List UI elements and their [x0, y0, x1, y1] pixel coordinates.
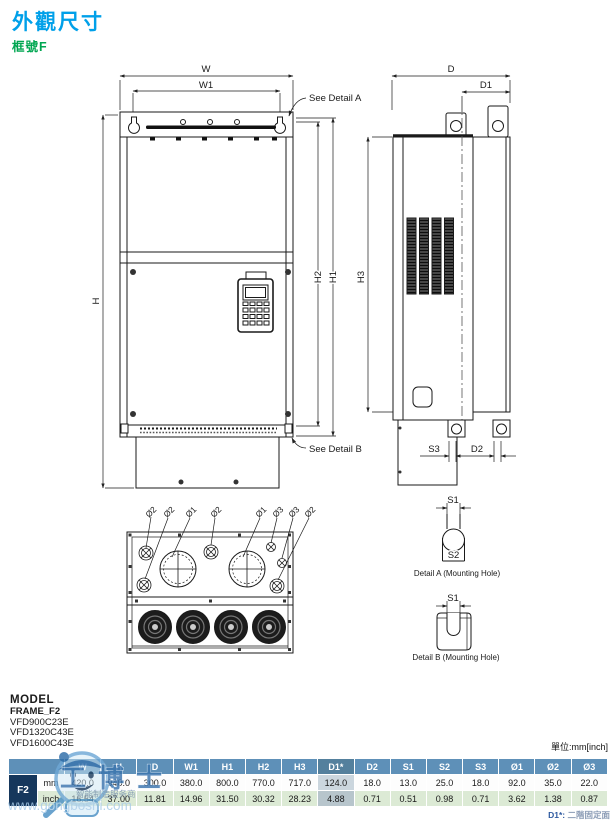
column-header-w1: W1 [174, 759, 209, 774]
table-cell: 0.71 [463, 791, 498, 806]
manual-page: { "header": { "title": "外觀尺寸", "subtitle… [0, 0, 616, 818]
table-cell: 717.0 [282, 775, 317, 790]
side-view: D D1 H3 [356, 64, 516, 485]
table-row-inch: inch 16.54 37.00 11.81 14.96 31.50 30.32… [9, 791, 607, 806]
unit-label: 單位:mm[inch] [551, 740, 608, 753]
table-cell: 11.81 [137, 791, 172, 806]
table-cell: 1.38 [535, 791, 570, 806]
hole-label-8: Ø2 [302, 504, 317, 519]
model-number: VFD1600C43E [10, 739, 74, 750]
table-cell: 35.0 [535, 775, 570, 790]
dim-label-d2: D2 [471, 444, 483, 455]
column-header-h: H [101, 759, 136, 774]
detail-b-caption: Detail B (Mounting Hole) [412, 653, 499, 662]
dim-label-s2: S2 [448, 550, 460, 561]
column-header-s3: S3 [463, 759, 498, 774]
dim-label-w: W [202, 64, 211, 75]
table-cell: 940.0 [101, 775, 136, 790]
dim-label-d1: D1 [480, 80, 492, 91]
dim-label-h: H [91, 297, 102, 304]
table-cell: 25.0 [427, 775, 462, 790]
hole-label-6: Ø3 [270, 504, 285, 519]
dim-label-s1-b: S1 [447, 593, 459, 604]
table-cell: 800.0 [210, 775, 245, 790]
table-cell: 16.54 [65, 791, 100, 806]
dim-label-d: D [448, 64, 455, 75]
detail-a-caption: Detail A (Mounting Hole) [414, 569, 501, 578]
dim-label-s1-a: S1 [447, 495, 459, 506]
table-cell: 0.71 [355, 791, 390, 806]
dim-label-h2: H2 [313, 271, 324, 283]
column-header-w: W [65, 759, 100, 774]
table-cell: 28.23 [282, 791, 317, 806]
detail-b: S1 Detail B (Mounting Hole) [412, 593, 499, 662]
dim-label-h1: H1 [328, 271, 339, 283]
column-header-s2: S2 [427, 759, 462, 774]
column-header-dia3: Ø3 [572, 759, 607, 774]
dim-label-s3: S3 [428, 444, 440, 455]
column-header-dia1: Ø1 [499, 759, 534, 774]
table-header-row: W H D W1 H1 H2 H3 D1* D2 S1 S2 S3 Ø1 Ø2 … [9, 759, 607, 774]
hole-label-5: Ø1 [253, 504, 268, 519]
table-cell: 380.0 [174, 775, 209, 790]
dim-label-w1: W1 [199, 80, 213, 91]
front-view: W W1 H H1 H2 [91, 64, 362, 488]
table-cell: 22.0 [572, 775, 607, 790]
column-header-empty [9, 759, 64, 774]
model-block: MODEL FRAME_F2 VFD900C23E VFD1320C43E VF… [10, 694, 74, 749]
table-cell: 770.0 [246, 775, 281, 790]
dimension-drawing: W W1 H H1 H2 [0, 0, 616, 690]
table-cell-d1: 124.0 [318, 775, 353, 790]
column-header-d1: D1* [318, 759, 353, 774]
dimension-table: W H D W1 H1 H2 H3 D1* D2 S1 S2 S3 Ø1 Ø2 … [8, 758, 608, 807]
table-cell: 420.0 [65, 775, 100, 790]
detail-a: S1 S2 Detail A (Mounting Hole) [414, 495, 501, 578]
table-cell: 92.0 [499, 775, 534, 790]
unit-cell-mm: mm [38, 775, 64, 790]
footnote-text: 二階固定面 [567, 810, 610, 820]
hole-label-3: Ø1 [183, 504, 198, 519]
model-frame: FRAME_F2 [10, 707, 74, 718]
hole-label-2: Ø2 [161, 504, 176, 519]
table-row-mm: F2 mm 420.0 940.0 300.0 380.0 800.0 770.… [9, 775, 607, 790]
footnote-label: D1*: [548, 810, 565, 820]
hole-label-7: Ø3 [286, 504, 301, 519]
column-header-d2: D2 [355, 759, 390, 774]
model-title: MODEL [10, 694, 74, 707]
table-cell-d1: 4.88 [318, 791, 353, 806]
table-cell: 14.96 [174, 791, 209, 806]
column-header-h1: H1 [210, 759, 245, 774]
table-cell: 300.0 [137, 775, 172, 790]
d1-footnote: D1*: 二階固定面 [548, 809, 610, 821]
table-cell: 30.32 [246, 791, 281, 806]
table-cell: 3.62 [499, 791, 534, 806]
column-header-h3: H3 [282, 759, 317, 774]
dim-label-h3: H3 [356, 271, 367, 283]
table-cell: 0.87 [572, 791, 607, 806]
table-cell: 18.0 [355, 775, 390, 790]
see-detail-a-label: See Detail A [309, 93, 362, 104]
frame-row-label: F2 [9, 775, 37, 806]
table-cell: 37.00 [101, 791, 136, 806]
unit-cell-inch: inch [38, 791, 64, 806]
table-cell: 31.50 [210, 791, 245, 806]
hole-label-4: Ø2 [208, 504, 223, 519]
column-header-s1: S1 [391, 759, 426, 774]
table-cell: 13.0 [391, 775, 426, 790]
column-header-d: D [137, 759, 172, 774]
table-cell: 0.51 [391, 791, 426, 806]
keypad [238, 272, 273, 332]
hole-label-1: Ø2 [143, 504, 158, 519]
table-cell: 0.98 [427, 791, 462, 806]
see-detail-b-label: See Detail B [309, 444, 362, 455]
column-header-h2: H2 [246, 759, 281, 774]
table-cell: 18.0 [463, 775, 498, 790]
column-header-dia2: Ø2 [535, 759, 570, 774]
bottom-view: Ø2 Ø2 Ø1 Ø2 Ø1 Ø3 Ø3 Ø2 [127, 504, 318, 653]
